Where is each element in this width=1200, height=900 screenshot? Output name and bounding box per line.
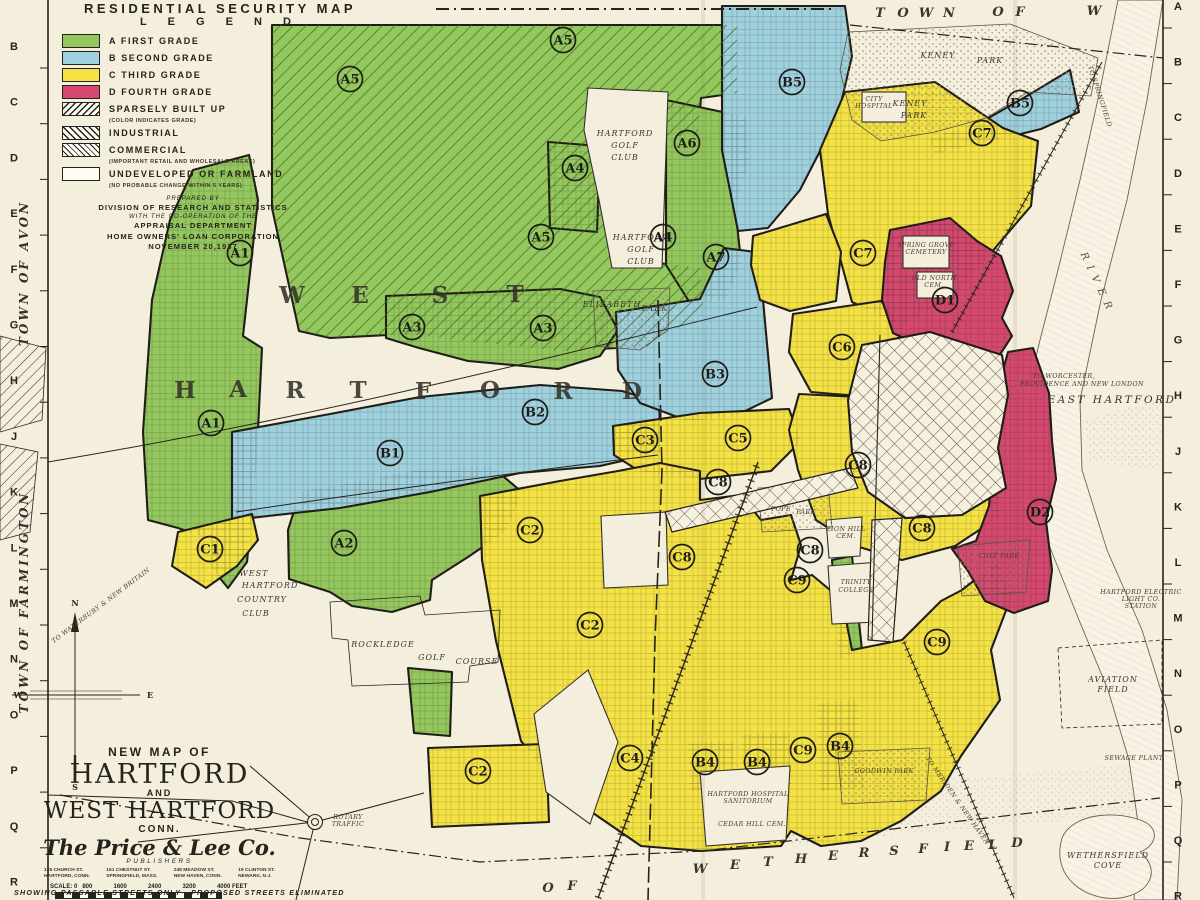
map-label: R <box>1174 891 1182 900</box>
svg-text:B4: B4 <box>747 756 767 771</box>
legend-entry-hatch: SPARSELY BUILT UP <box>62 102 352 116</box>
svg-text:C7: C7 <box>853 247 872 262</box>
map-label: F <box>917 842 928 857</box>
map-label: T <box>763 855 774 870</box>
map-label: KENEY <box>892 99 928 108</box>
map-label: O <box>1174 724 1183 736</box>
margin-hatch <box>0 336 46 432</box>
series-title: RESIDENTIAL SECURITY MAP <box>84 1 356 16</box>
map-label: D <box>1010 836 1023 851</box>
legend-swatch-ind <box>62 126 100 140</box>
map-label: COVE <box>1094 861 1122 870</box>
map-label: R <box>858 846 870 861</box>
map-label: R <box>10 877 18 889</box>
svg-text:B1: B1 <box>380 447 400 462</box>
svg-text:C8: C8 <box>672 551 691 566</box>
map-label: P <box>10 765 17 777</box>
svg-text:C5: C5 <box>728 432 747 447</box>
title-city1: HARTFORD <box>42 761 277 788</box>
map-label: SPRING GROVE <box>897 242 954 249</box>
svg-text:C8: C8 <box>912 522 931 537</box>
title-block: NEW MAP OF HARTFORD AND WEST HARTFORD CO… <box>42 746 277 900</box>
svg-text:A4: A4 <box>652 231 672 246</box>
map-label: CLUB <box>627 257 655 266</box>
map-label: TRINITY <box>841 579 872 586</box>
svg-text:C8: C8 <box>708 476 727 491</box>
legend-entry-green: A FIRST GRADE <box>62 34 352 48</box>
svg-text:B2: B2 <box>525 406 545 421</box>
map-label: OLD NORTH <box>912 275 957 282</box>
map-label: EAST HARTFORD <box>1047 394 1177 406</box>
map-label: GOLF <box>611 141 639 150</box>
svg-text:B3: B3 <box>705 368 725 383</box>
svg-text:C7: C7 <box>972 127 991 142</box>
map-label: T <box>349 377 366 404</box>
map-label: K <box>1174 501 1182 513</box>
map-label: E <box>147 690 153 700</box>
map-label: E <box>827 849 839 864</box>
legend-swatch-green <box>62 34 100 48</box>
map-label: O <box>992 5 1004 20</box>
map-label: D <box>10 152 18 164</box>
map-label: E <box>963 839 975 854</box>
legend-label: INDUSTRIAL <box>109 128 180 138</box>
svg-text:C9: C9 <box>927 636 946 651</box>
map-label: HARTFORD <box>241 581 299 590</box>
map-label: C <box>10 97 18 109</box>
residential-security-map: BCDEFGHJKLMNOPQRABCDEFGHJKLMNOPQR WESTHA… <box>0 0 1200 900</box>
map-label: STATION <box>1125 603 1158 610</box>
map-label: N <box>71 598 78 608</box>
svg-text:C2: C2 <box>468 765 487 780</box>
map-label: WEST <box>240 569 269 578</box>
map-label: ROTARY <box>332 814 363 821</box>
title-and: AND <box>42 789 277 798</box>
svg-text:C4: C4 <box>620 752 639 767</box>
map-label: KENEY <box>920 51 956 60</box>
map-label: Q <box>1174 835 1183 847</box>
fold-crease <box>1013 0 1017 900</box>
hartford-hospital-area <box>700 766 790 846</box>
svg-text:C2: C2 <box>580 619 599 634</box>
svg-text:A5: A5 <box>552 34 572 49</box>
map-label: PARK <box>976 56 1003 65</box>
prepared-by-line: PREPARED BY <box>78 195 308 203</box>
legend-label: SPARSELY BUILT UP <box>109 104 226 114</box>
map-label: M <box>1173 613 1182 625</box>
map-label: ELIZABETH <box>582 300 642 309</box>
map-label: F <box>1014 5 1025 20</box>
map-label: D <box>1174 168 1182 180</box>
svg-text:C8: C8 <box>848 459 867 474</box>
legend-label: C THIRD GRADE <box>109 70 201 80</box>
map-label: T <box>875 6 886 21</box>
svg-text:C9: C9 <box>793 744 812 759</box>
map-label: CLUB <box>611 153 639 162</box>
map-label: COLLEGE <box>838 587 873 594</box>
legend-entry-white: UNDEVELOPED OR FARMLAND <box>62 167 352 181</box>
title-rule <box>436 8 836 10</box>
legend-swatch-com <box>62 143 100 157</box>
map-label: R <box>553 378 573 405</box>
map-label: I <box>943 840 951 855</box>
legend-label: D FOURTH GRADE <box>109 87 213 97</box>
svg-text:B5: B5 <box>1010 97 1030 112</box>
map-label: W <box>278 282 306 309</box>
title-line1: NEW MAP OF <box>42 746 277 758</box>
map-label: SANITORIUM <box>723 798 772 805</box>
publisher-address: 19 CLINTON ST. NEWARK, N.J. <box>238 868 275 880</box>
prepared-by-line: WITH THE CO-OPERATION OF THE <box>78 213 308 221</box>
legend-note: (IMPORTANT RETAIL AND WHOLESALE AREAS) <box>109 159 352 165</box>
colt-park <box>958 540 1030 596</box>
publisher-address: 151 CHESTNUT ST. SPRINGFIELD, MASS. <box>106 868 157 880</box>
legend-label: A FIRST GRADE <box>109 36 199 46</box>
title-state: CONN. <box>42 825 277 835</box>
goodwin-park <box>838 748 930 804</box>
map-label: PARK <box>641 304 668 313</box>
map-label: S <box>889 844 898 859</box>
map-label: O <box>897 6 909 21</box>
svg-text:A5: A5 <box>530 231 550 246</box>
legend-entry-com: COMMERCIAL <box>62 143 352 157</box>
zone-a-small-south <box>408 668 452 736</box>
svg-text:D1: D1 <box>935 294 955 309</box>
legend-title: L E G E N D <box>62 16 352 28</box>
map-label: CEDAR HILL CEM. <box>718 821 786 828</box>
map-label: T <box>506 281 523 308</box>
map-label: C <box>1174 112 1182 124</box>
map-label: COUNTRY <box>237 595 287 604</box>
svg-text:A3: A3 <box>401 321 421 336</box>
map-label: HOSPITAL <box>854 103 892 110</box>
map-label: COLT PARK <box>978 553 1020 560</box>
map-label: W <box>919 6 935 21</box>
prepared-by-line: APPRAISAL DEPARTMENT <box>78 221 308 231</box>
map-label: CEMETERY <box>905 249 947 256</box>
legend-entry-ind: INDUSTRIAL <box>62 126 352 140</box>
legend-swatch-white <box>62 167 100 181</box>
map-label: N <box>942 6 956 21</box>
svg-text:C2: C2 <box>520 524 539 539</box>
legend-swatch-red <box>62 85 100 99</box>
map-label: LIGHT CO. <box>1121 596 1161 603</box>
publisher-address: 185 CHURCH ST. HARTFORD, CONN. <box>44 868 90 880</box>
svg-text:C8: C8 <box>800 544 819 559</box>
legend-swatch-yellow <box>62 68 100 82</box>
svg-text:B4: B4 <box>830 740 850 755</box>
map-label: J <box>1175 446 1181 458</box>
svg-text:C1: C1 <box>200 543 219 558</box>
map-label: GOLF <box>627 245 655 254</box>
map-label: L <box>1175 557 1182 569</box>
map-label: CLUB <box>242 609 270 618</box>
prepared-by-line: NOVEMBER 20,1937 <box>78 242 308 252</box>
map-label: R <box>285 377 305 404</box>
map-label: TO WORCESTER, <box>1033 373 1095 380</box>
map-label: HARTFORD HOSPITAL <box>706 791 788 798</box>
prepared-by-block: PREPARED BYDIVISION OF RESEARCH AND STAT… <box>78 195 308 252</box>
publisher-addresses: 185 CHURCH ST. HARTFORD, CONN.151 CHESTN… <box>44 868 275 880</box>
map-label: GOODWIN PARK <box>854 768 914 775</box>
svg-text:B5: B5 <box>782 76 802 91</box>
map-label: E <box>1174 223 1181 235</box>
svg-text:A2: A2 <box>333 537 353 552</box>
map-label: PARK <box>900 111 927 120</box>
map-label: TRAFFIC <box>332 821 364 828</box>
map-label: H <box>10 375 18 387</box>
map-label: N <box>1174 668 1182 680</box>
legend-swatch-hatch <box>62 102 100 116</box>
map-label: ZION HILL <box>825 526 865 533</box>
map-label: P <box>1174 779 1181 791</box>
map-label: F <box>415 378 432 405</box>
svg-text:D2: D2 <box>1030 506 1050 521</box>
svg-text:A6: A6 <box>676 137 696 152</box>
svg-text:C3: C3 <box>635 434 654 449</box>
map-label: TOWN OF FARMINGTON <box>17 491 31 714</box>
map-label: SEWAGE PLANT <box>1105 755 1164 762</box>
map-label: W <box>693 862 709 877</box>
svg-text:A4: A4 <box>564 162 584 177</box>
legend-swatch-blue <box>62 51 100 65</box>
map-label: O <box>480 377 500 404</box>
map-label: AVIATION <box>1087 675 1138 684</box>
map-footnote: SHOWING PASSABLE STREETS ONLY - PROPOSED… <box>14 888 345 897</box>
zone-c2-southwest <box>428 744 549 827</box>
prepared-by-line: DIVISION OF RESEARCH AND STATISTICS <box>78 203 308 213</box>
svg-text:B4: B4 <box>695 756 715 771</box>
map-label: O <box>542 881 554 896</box>
map-label: Q <box>10 821 19 833</box>
svg-text:C6: C6 <box>832 341 851 356</box>
publisher-name: The Price & Lee Co. <box>42 837 277 858</box>
map-label: WETHERSFIELD <box>1067 851 1149 860</box>
map-label: TOWN OF AVON <box>17 200 31 346</box>
map-label: PROVIDENCE AND NEW LONDON <box>1019 381 1144 388</box>
prepared-by-line: HOME OWNERS' LOAN CORPORATION <box>78 232 308 242</box>
legend-entry-yellow: C THIRD GRADE <box>62 68 352 82</box>
legend-entry-red: D FOURTH GRADE <box>62 85 352 99</box>
map-label: E <box>729 858 741 873</box>
map-label: POPE <box>770 506 791 513</box>
map-label: G <box>1174 335 1183 347</box>
map-label: COURSE <box>456 657 499 666</box>
map-label: H <box>794 852 808 867</box>
svg-text:A3: A3 <box>532 322 552 337</box>
svg-text:A1: A1 <box>200 417 220 432</box>
legend-note: (NO PROBABLE CHANGE WITHIN 5 YEARS) <box>109 183 352 189</box>
map-label: B <box>10 41 18 53</box>
map-label: B <box>1174 57 1182 69</box>
map-label: CEM. <box>836 533 855 540</box>
svg-text:A7: A7 <box>705 251 725 266</box>
publisher-address: 248 MEADOW ST. NEW HAVEN, CONN. <box>174 868 222 880</box>
map-label: E <box>351 282 369 309</box>
map-label: HARTFORD ELECTRIC <box>1099 589 1181 596</box>
map-label: A <box>1174 1 1182 13</box>
map-label: CITY <box>865 96 883 103</box>
rotary-traffic-circle <box>308 815 323 830</box>
map-label: A <box>228 376 248 403</box>
map-label: F <box>566 879 577 894</box>
map-label: PARK <box>795 509 816 516</box>
map-label: S <box>432 282 449 309</box>
map-label: HARTFORD <box>596 129 654 138</box>
map-label: W <box>13 690 24 700</box>
legend-label: UNDEVELOPED OR FARMLAND <box>109 169 283 179</box>
title-city2: WEST HARTFORD <box>42 800 277 823</box>
map-label: J <box>11 431 17 443</box>
legend: L E G E N D A FIRST GRADEB SECOND GRADEC… <box>62 16 352 252</box>
map-label: FIELD <box>1096 685 1128 694</box>
map-label: ROCKLEDGE <box>350 640 414 649</box>
map-label: F <box>1175 279 1182 291</box>
legend-note: (COLOR INDICATES GRADE) <box>109 118 352 124</box>
legend-entry-blue: B SECOND GRADE <box>62 51 352 65</box>
map-label: W <box>1087 4 1103 19</box>
svg-text:C9: C9 <box>787 574 806 589</box>
map-label: H <box>174 377 196 404</box>
map-label: GOLF <box>418 653 446 662</box>
legend-label: B SECOND GRADE <box>109 53 214 63</box>
legend-label: COMMERCIAL <box>109 145 187 155</box>
map-label: D <box>622 378 642 405</box>
